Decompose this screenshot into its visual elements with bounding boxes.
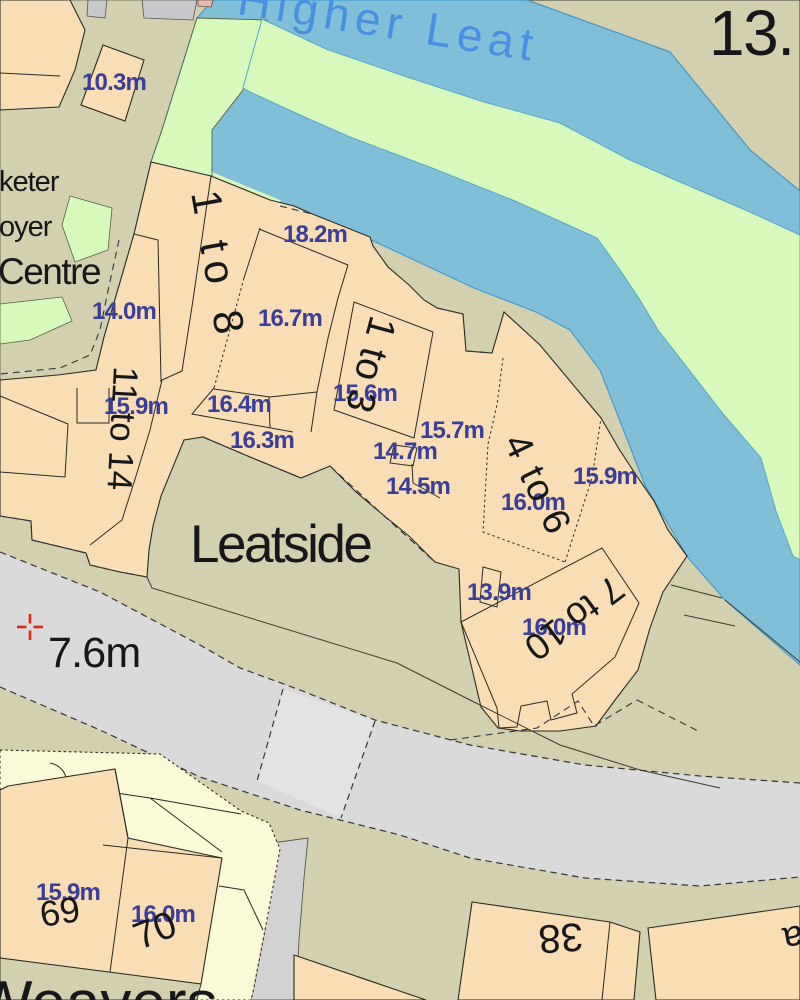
svg-text:38: 38 — [537, 914, 584, 961]
svg-text:18.2m: 18.2m — [283, 221, 347, 248]
svg-text:15.7m: 15.7m — [420, 417, 484, 444]
svg-text:14.0m: 14.0m — [92, 298, 156, 325]
svg-text:16.4m: 16.4m — [207, 391, 271, 418]
svg-text:10.3m: 10.3m — [82, 69, 146, 96]
svg-text:16.7m: 16.7m — [258, 305, 322, 332]
svg-text:oyer: oyer — [0, 211, 53, 243]
svg-text:69: 69 — [37, 888, 83, 935]
svg-text:13.: 13. — [709, 0, 793, 69]
svg-text:15.9m: 15.9m — [573, 463, 637, 490]
svg-text:7.6m: 7.6m — [48, 629, 140, 677]
svg-text:16.3m: 16.3m — [230, 427, 294, 454]
svg-text:14.5m: 14.5m — [386, 473, 450, 500]
svg-text:11 to 14: 11 to 14 — [100, 366, 145, 492]
svg-text:Centre: Centre — [0, 251, 100, 292]
svg-text:Leatside: Leatside — [190, 515, 371, 574]
svg-text:Weavers: Weavers — [0, 969, 218, 1000]
svg-text:13.9m: 13.9m — [467, 579, 531, 606]
svg-text:keter: keter — [0, 166, 60, 198]
